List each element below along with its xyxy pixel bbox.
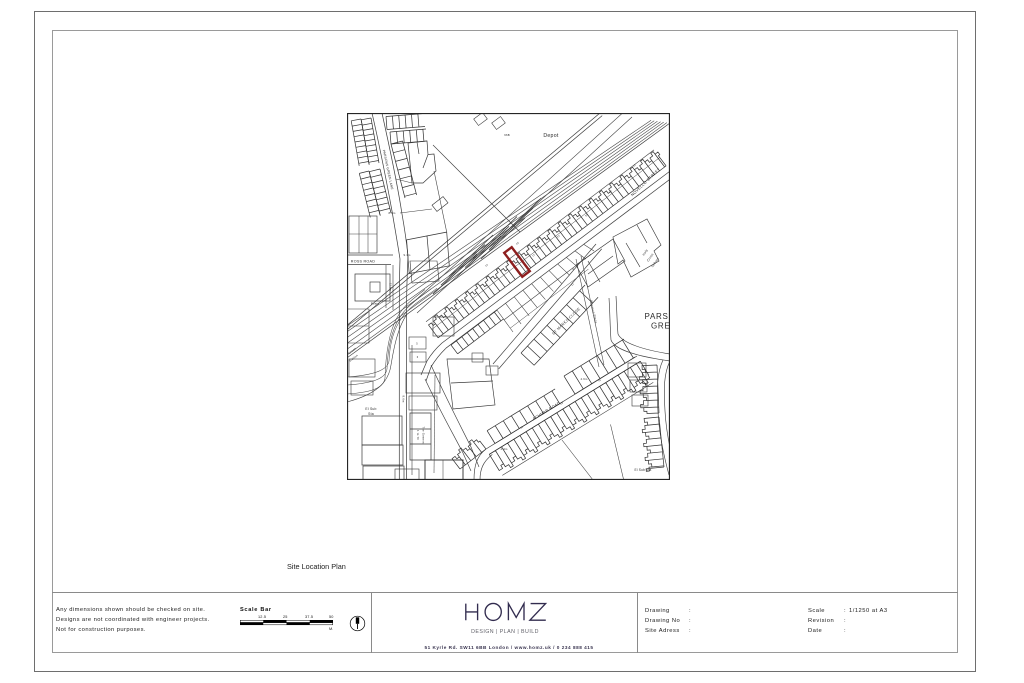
svg-text:Posts: Posts <box>371 302 380 306</box>
svg-text:45: 45 <box>516 241 521 246</box>
svg-text:The Gowers: The Gowers <box>422 426 426 444</box>
svg-text:4.4m: 4.4m <box>500 447 507 451</box>
svg-text:5: 5 <box>416 343 418 346</box>
svg-text:ROSS ROAD: ROSS ROAD <box>351 260 375 264</box>
svg-text:El Sub Sta: El Sub Sta <box>634 468 651 472</box>
svg-text:15: 15 <box>532 253 537 258</box>
svg-text:9.6m: 9.6m <box>402 395 406 402</box>
svg-text:55: 55 <box>633 163 638 168</box>
svg-text:6: 6 <box>417 356 419 359</box>
svg-text:25: 25 <box>557 234 562 239</box>
svg-text:1 to 70: 1 to 70 <box>416 430 420 440</box>
svg-text:Depot: Depot <box>543 133 559 139</box>
svg-text:1b: 1b <box>485 263 490 268</box>
svg-text:12: 12 <box>570 282 575 287</box>
svg-text:8.8m: 8.8m <box>388 211 395 215</box>
svg-text:PARS: PARS <box>645 312 669 321</box>
svg-text:ACHMAR ROAD: ACHMAR ROAD <box>532 401 561 421</box>
svg-text:9.1m: 9.1m <box>403 253 410 257</box>
svg-text:Sta: Sta <box>368 412 374 416</box>
svg-text:21: 21 <box>560 401 565 405</box>
svg-text:Holy: Holy <box>641 248 649 256</box>
svg-text:Pegasus Place: Pegasus Place <box>589 300 598 324</box>
svg-text:El Sub: El Sub <box>365 407 376 411</box>
svg-text:35: 35 <box>585 213 590 218</box>
svg-text:4.6m: 4.6m <box>580 377 587 381</box>
svg-text:NOVELLO STREET: NOVELLO STREET <box>630 166 662 197</box>
svg-text:31: 31 <box>598 378 603 382</box>
svg-text:GRE: GRE <box>651 321 670 330</box>
svg-text:66B: 66B <box>504 133 510 137</box>
svg-text:12.8m: 12.8m <box>389 283 393 291</box>
